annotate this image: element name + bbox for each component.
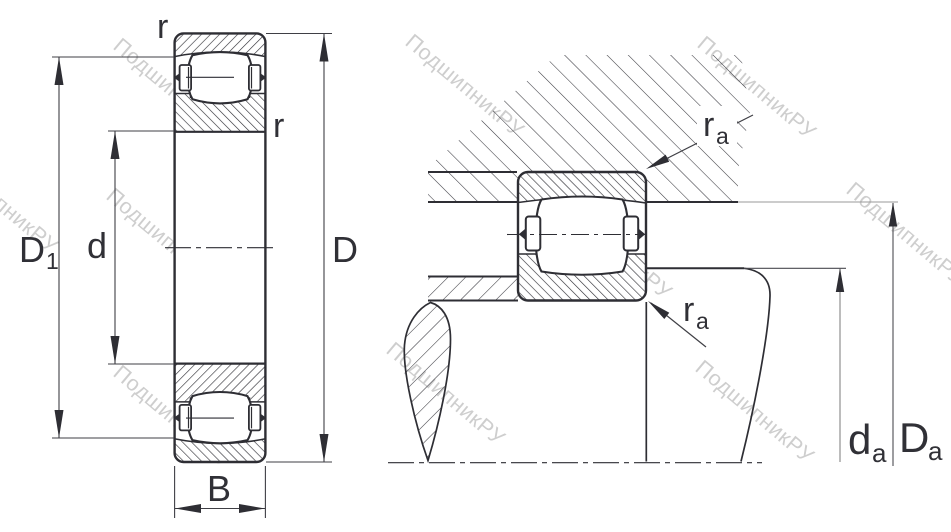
shaft-break-section (404, 303, 450, 461)
barrel-roller (536, 197, 629, 275)
cage-bar-left (526, 217, 541, 251)
label-ra-housing: r (703, 106, 714, 144)
label-B: B (207, 468, 231, 509)
label-ra-housing-subscript: a (716, 123, 729, 149)
watermark-text: ПодшипникРУ (842, 177, 951, 290)
label-da: d (848, 416, 871, 463)
cage-bar-right (624, 217, 639, 251)
arrowhead (239, 504, 265, 513)
bearing-bottom-section (174, 364, 267, 463)
arrowhead (320, 34, 329, 62)
watermark-text: ПодшипникРУ (691, 355, 819, 468)
cage-bar-right (249, 405, 261, 431)
bearing-technical-drawing: ПодшипникРУ ПодшипникРУ ПодшипникРУ Подш… (0, 0, 951, 532)
label-ra-shaft-subscript: a (696, 308, 709, 334)
arrowhead (55, 57, 64, 85)
drawing-canvas: ПодшипникРУ ПодшипникРУ ПодшипникРУ Подш… (0, 0, 951, 532)
label-chamfer-r-top: r (157, 8, 168, 46)
cage-bar-right (249, 65, 261, 91)
shaft-shoulder-section (428, 277, 518, 301)
bearing-top-section (174, 33, 267, 132)
arrowhead (836, 268, 844, 292)
label-D: D (332, 229, 358, 270)
label-Da-subscript: a (928, 436, 943, 466)
arrowhead (320, 434, 329, 462)
label-D1-subscript: 1 (46, 248, 59, 274)
label-Da: D (899, 414, 929, 461)
bearing-internals (518, 171, 646, 301)
arrowhead (55, 410, 64, 438)
label-da-subscript: a (872, 438, 887, 468)
arrowhead (175, 504, 201, 513)
left-view-bearing-section (165, 33, 274, 462)
label-ra-shaft: r (683, 291, 694, 329)
arrowhead (111, 131, 120, 159)
label-D1: D (19, 229, 45, 270)
label-chamfer-r-bore: r (273, 107, 284, 145)
arrowhead (648, 301, 669, 319)
label-d: d (87, 225, 107, 266)
watermark-layer: ПодшипникРУ ПодшипникРУ ПодшипникРУ Подш… (0, 29, 951, 473)
arrowhead (111, 336, 120, 364)
